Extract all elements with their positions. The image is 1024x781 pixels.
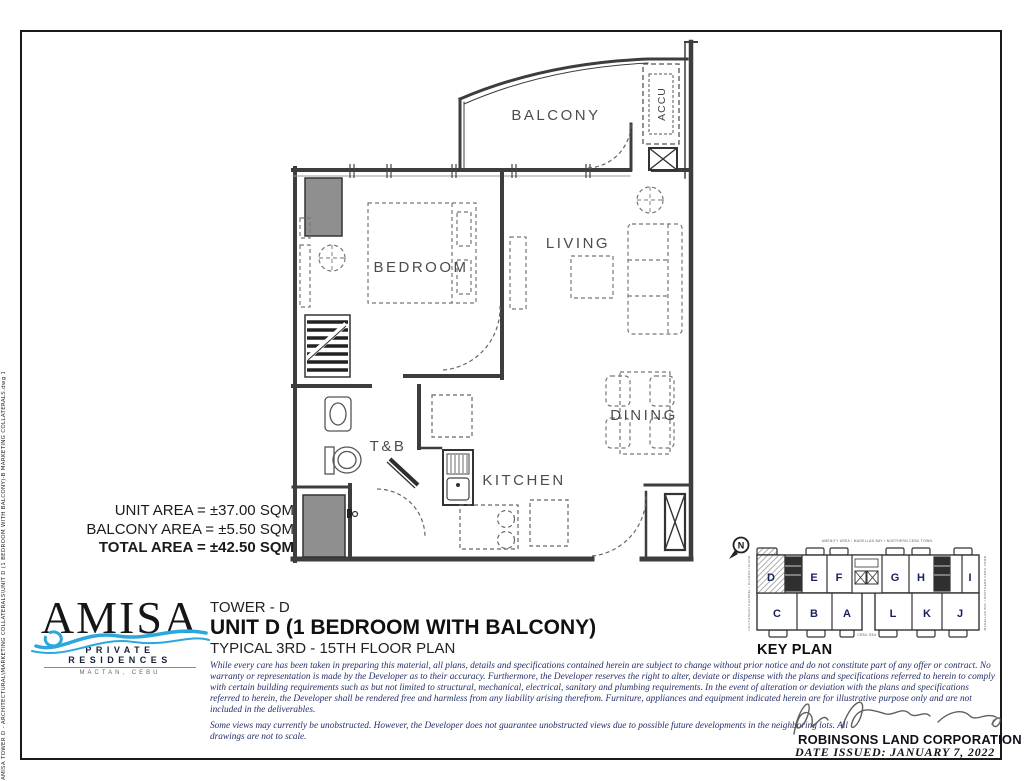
door-swings: [377, 124, 646, 556]
wardrobe: [305, 315, 350, 377]
logo-wordmark: AMISA: [34, 594, 206, 642]
logo-location: MACTAN, CEBU: [34, 670, 206, 676]
accu-label: ACCU: [656, 87, 668, 121]
logo-divider: [44, 667, 196, 668]
unit-area-line: UNIT AREA = ±37.00 SQM: [42, 502, 294, 521]
amisa-logo: AMISA PRIVATE RESIDENCES MACTAN, CEBU: [34, 594, 206, 676]
svg-text:I: I: [968, 572, 971, 584]
kitchen-label: KITCHEN: [482, 472, 565, 489]
area-summary: UNIT AREA = ±37.00 SQM BALCONY AREA = ±5…: [42, 502, 294, 558]
living-label: LIVING: [546, 235, 610, 252]
key-plan-building: [757, 548, 979, 637]
title-block: TOWER - D UNIT D (1 BEDROOM WITH BALCONY…: [210, 599, 596, 658]
dining-label: DINING: [610, 407, 678, 424]
svg-text:J: J: [957, 608, 963, 620]
toilet-bath-fixtures: [325, 397, 361, 474]
svg-text:C: C: [773, 608, 781, 620]
toilet-bath-label: T&B: [370, 438, 407, 455]
unit-title: UNIT D (1 BEDROOM WITH BALCONY): [210, 616, 596, 640]
bedroom-label: BEDROOM: [373, 259, 468, 276]
svg-text:D: D: [767, 572, 775, 584]
svg-text:B: B: [810, 608, 818, 620]
total-area-line: TOTAL AREA = ±42.50 SQM: [42, 539, 294, 558]
logo-tagline: PRIVATE RESIDENCES: [34, 645, 206, 665]
svg-text:N: N: [738, 541, 745, 551]
views-disclaimer-paragraph: Some views may currently be unobstructed…: [210, 721, 862, 743]
key-plan-top-caption: AMENITY AREA / MAGELLAN BAY / NORTHERN C…: [822, 539, 933, 543]
north-arrow-icon: N: [729, 538, 749, 560]
living-furniture: [510, 187, 682, 334]
svg-text:F: F: [836, 572, 843, 584]
key-plan-bottom-caption: CEBU SEA: [857, 633, 877, 637]
key-plan-left-caption: HILUTUNGAN CHANNEL / OLANGO ISLAND: [747, 555, 751, 631]
structural-columns: [303, 148, 685, 557]
svg-text:H: H: [917, 572, 925, 584]
key-plan: N: [727, 533, 1010, 658]
balcony-label: BALCONY: [511, 107, 600, 124]
svg-text:E: E: [810, 572, 817, 584]
accu-unit: ACCU: [643, 64, 679, 144]
floor-plan-sheet: AMISA TOWER D - ARCHITECTURAL\MARKETING …: [0, 0, 1024, 781]
key-plan-title: KEY PLAN: [757, 642, 832, 658]
date-issued: DATE ISSUED: JANUARY 7, 2022: [795, 745, 995, 760]
svg-text:A: A: [843, 608, 851, 620]
floor-plan-drawing: ACCU: [278, 28, 710, 573]
svg-text:L: L: [890, 608, 897, 620]
floor-range-label: TYPICAL 3RD - 15TH FLOOR PLAN: [210, 640, 596, 658]
svg-text:K: K: [923, 608, 931, 620]
svg-text:G: G: [891, 572, 900, 584]
key-plan-right-caption: MAGELLAN BAY / NORTHERN CEBU TOWN: [983, 556, 987, 631]
plot-stamp: AMISA TOWER D - ARCHITECTURAL\MARKETING …: [1, 372, 15, 780]
balcony-area-line: BALCONY AREA = ±5.50 SQM: [42, 521, 294, 540]
shower-door: [387, 459, 418, 488]
utility-faucet-icon: [347, 509, 352, 518]
tower-label: TOWER - D: [210, 599, 596, 616]
